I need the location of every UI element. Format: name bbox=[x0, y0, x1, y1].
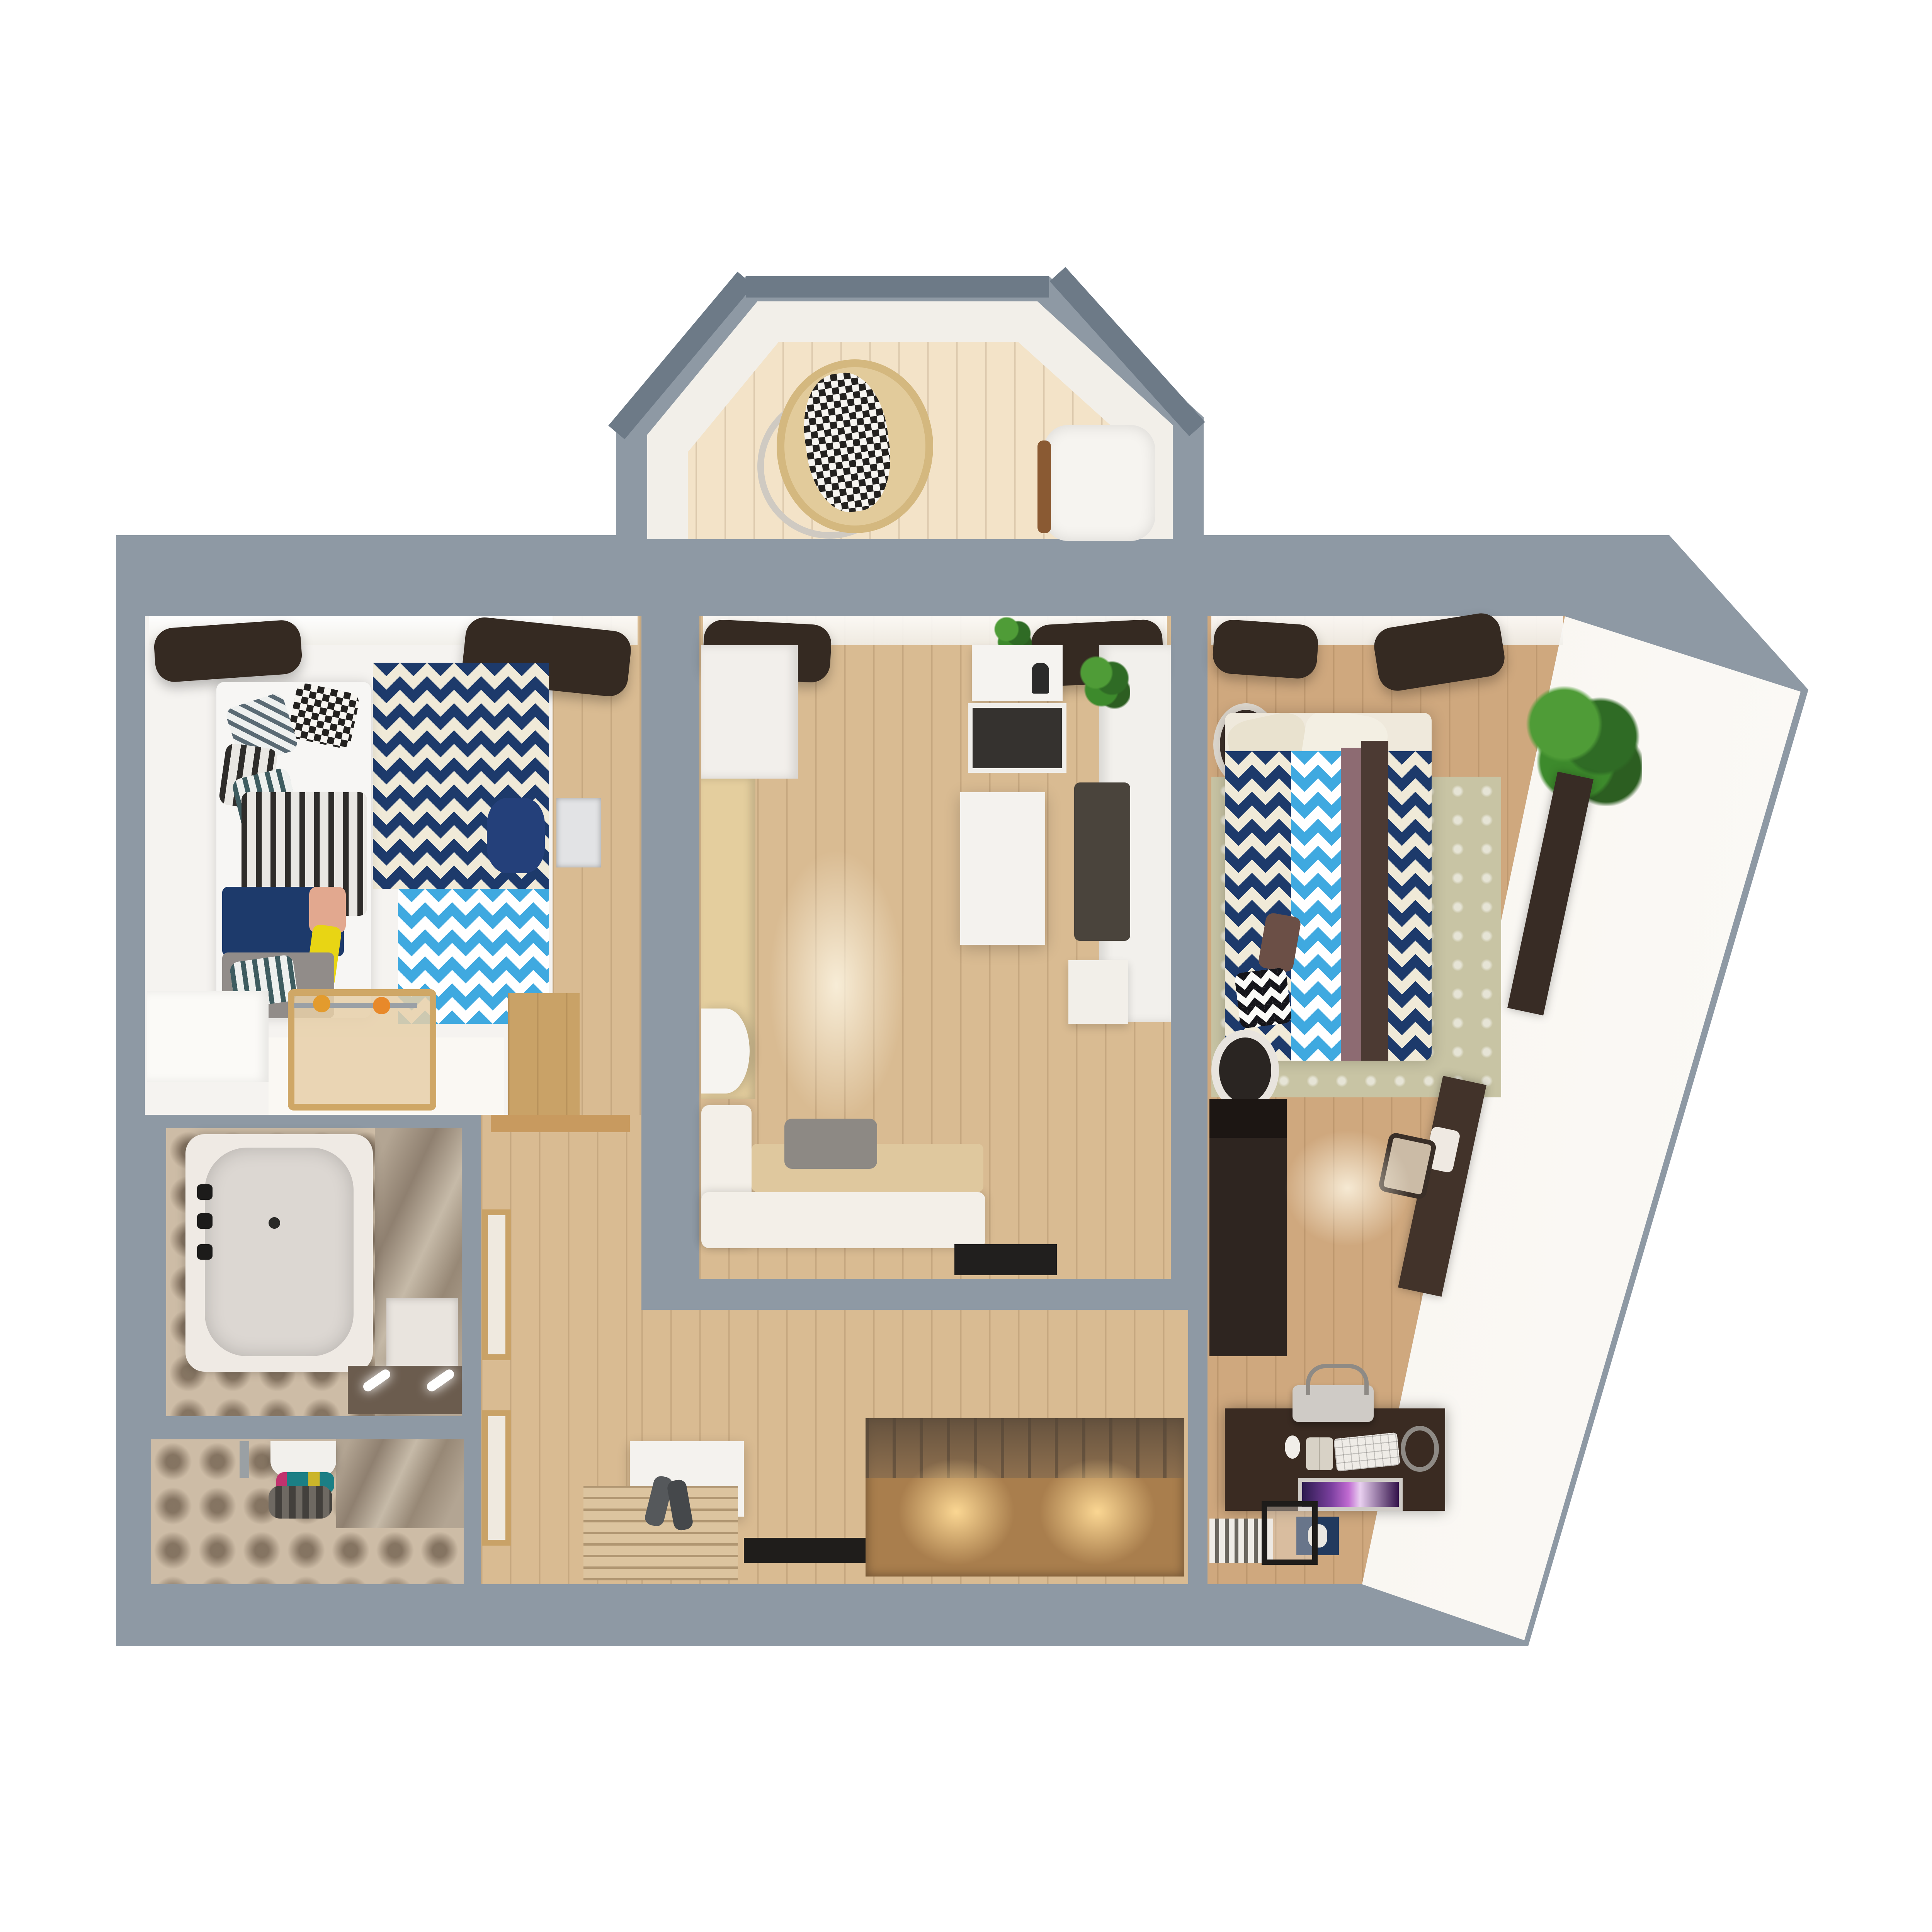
rack-bar bbox=[294, 1003, 417, 1008]
open-book bbox=[1306, 1437, 1333, 1470]
rack-toy-orange-1 bbox=[313, 995, 330, 1012]
counter-dark-runner bbox=[1074, 782, 1130, 941]
rack-toy-orange-2 bbox=[373, 997, 390, 1014]
mauve-throw bbox=[1341, 748, 1362, 1061]
faucet-fixture-1 bbox=[197, 1184, 213, 1200]
wardrobe-glow-2 bbox=[1039, 1459, 1155, 1565]
counter-plant bbox=[1078, 653, 1130, 709]
mouse bbox=[1285, 1435, 1300, 1459]
faucet-fixture-2 bbox=[197, 1213, 213, 1229]
wc-marble-wall bbox=[336, 1439, 464, 1528]
island-table bbox=[960, 792, 1045, 945]
washing-machine bbox=[386, 1298, 458, 1376]
metal-stool bbox=[1262, 1501, 1318, 1565]
brown-throw bbox=[1361, 741, 1388, 1061]
doorway-threshold bbox=[491, 1115, 630, 1132]
balcony-armchair bbox=[1043, 425, 1155, 541]
printer-handle bbox=[1306, 1364, 1369, 1395]
fan-object bbox=[1211, 1030, 1279, 1111]
bw-chevron-pillow bbox=[1234, 967, 1292, 1029]
wardrobe-top-shadow bbox=[1209, 1099, 1287, 1138]
round-side-table bbox=[701, 1009, 750, 1094]
kitchen-doormat bbox=[954, 1244, 1057, 1275]
kids-desk bbox=[556, 798, 601, 867]
kids-curtain-left bbox=[153, 619, 303, 683]
navy-desk-chair bbox=[487, 798, 545, 873]
bedroom-curtain-left bbox=[1211, 619, 1319, 680]
mic-arm bbox=[1401, 1426, 1439, 1472]
white-low-cabinet bbox=[147, 991, 269, 1082]
floor-plan-render bbox=[0, 0, 1932, 1932]
armchair-wood-frame bbox=[1037, 440, 1051, 533]
kids-room-door bbox=[508, 993, 580, 1115]
cooktop bbox=[968, 703, 1066, 773]
wardrobe-glow-1 bbox=[898, 1459, 1014, 1565]
black-doormat bbox=[744, 1538, 866, 1563]
bottle bbox=[1032, 663, 1049, 694]
kitchen-light-patch bbox=[769, 850, 904, 1121]
corner-sofa-bottom bbox=[701, 1192, 985, 1248]
bed-chevron-right bbox=[1388, 751, 1432, 1061]
frosted-interior-door bbox=[482, 1209, 511, 1360]
bed-chevron-middle bbox=[1291, 751, 1340, 1061]
bathtub-inner bbox=[205, 1148, 354, 1356]
bathtub-drain bbox=[269, 1217, 280, 1229]
kitchen-white-cabinet bbox=[1068, 960, 1128, 1024]
faucet-fixture-3 bbox=[197, 1244, 213, 1260]
double-bed bbox=[1225, 713, 1432, 1061]
chrome-radiator bbox=[269, 1486, 332, 1519]
sofa-grey-cushion bbox=[784, 1119, 877, 1169]
frosted-interior-door-2 bbox=[482, 1410, 511, 1546]
wc-door-strip bbox=[240, 1441, 249, 1478]
white-wardrobe bbox=[701, 645, 798, 779]
keyboard bbox=[1333, 1432, 1400, 1472]
balcony-parapet-top bbox=[746, 276, 1049, 298]
bedroom-light-patch bbox=[1285, 1130, 1410, 1246]
